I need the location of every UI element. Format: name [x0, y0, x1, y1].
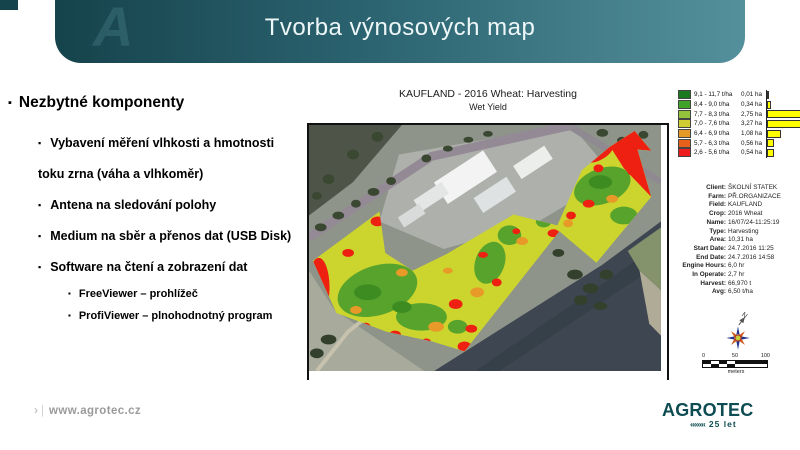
info-row: Harvest:66,970 t	[670, 280, 798, 289]
legend-bar-axis	[766, 129, 781, 139]
legend-row: 8,4 - 9,0 t/ha 0,34 ha	[678, 100, 800, 110]
legend-swatch	[678, 119, 691, 128]
scale-bar	[702, 360, 768, 368]
list-item: ▪Vybavení měření vlhkosti a hmotnosti to…	[30, 128, 320, 190]
yield-map	[307, 123, 669, 380]
legend-bar-axis	[766, 119, 800, 129]
info-row: Avg:6,50 t/ha	[670, 288, 798, 297]
legend-row: 7,0 - 7,6 t/ha 3,27 ha	[678, 119, 800, 129]
info-row: In Operate:2,7 hr	[670, 271, 798, 280]
corner-accent	[0, 0, 18, 10]
scale-ticks: 0 50 100	[702, 353, 770, 360]
info-row: Name:16/07/24-11:25:19	[670, 219, 798, 228]
bullet-icon: ▪	[38, 262, 41, 272]
list-item: ▪Software na čtení a zobrazení dat	[30, 252, 320, 283]
legend-bar-axis	[766, 109, 800, 119]
list-item: ▪FreeViewer – prohlížeč	[68, 283, 320, 305]
legend-row: 6,4 - 6,9 t/ha 1,08 ha	[678, 129, 800, 139]
map-subtitle: Wet Yield	[340, 102, 636, 112]
section-heading: ▪Nezbytné komponenty	[8, 94, 184, 112]
footer-url-block: ›|www.agrotec.cz	[34, 403, 141, 417]
sub-bullet-list: ▪FreeViewer – prohlížeč ▪ProfiViewer – p…	[30, 283, 320, 327]
compass-rose-icon: N	[719, 309, 757, 353]
slide: A Tvorba výnosových map ▪Nezbytné kompon…	[0, 0, 800, 450]
bullet-list: ▪Vybavení měření vlhkosti a hmotnosti to…	[30, 128, 320, 327]
legend-bar-axis	[766, 138, 774, 148]
title-bar: A Tvorba výnosových map	[55, 0, 745, 63]
legend-bar-axis	[766, 148, 774, 158]
info-row: Client:ŠKOLNÍ STATEK	[670, 184, 798, 193]
legend-row: 9,1 - 11,7 t/ha 0,01 ha	[678, 90, 800, 100]
info-row: Start Date:24.7.2016 11:25	[670, 245, 798, 254]
info-row: End Date:24.7.2016 14:58	[670, 254, 798, 263]
bullet-icon: ▪	[38, 200, 41, 210]
map-title-block: KAUFLAND - 2016 Wheat: Harvesting Wet Yi…	[340, 88, 636, 112]
area-bar	[767, 91, 769, 99]
legend-swatch	[678, 139, 691, 148]
legend-row: 5,7 - 6,3 t/ha 0,56 ha	[678, 138, 800, 148]
info-row: Crop:2016 Wheat	[670, 210, 798, 219]
area-bar	[767, 120, 800, 128]
bullet-icon: ▪	[8, 97, 12, 109]
list-item: ▪Medium na sběr a přenos dat (USB Disk)	[30, 221, 320, 252]
area-bar	[767, 149, 774, 157]
yield-legend: 9,1 - 11,7 t/ha 0,01 ha 8,4 - 9,0 t/ha 0…	[678, 90, 800, 158]
area-bar	[767, 139, 774, 147]
area-bar	[767, 101, 771, 109]
list-item: ▪ProfiViewer – plnohodnotný program	[68, 305, 320, 327]
website-link[interactable]: www.agrotec.cz	[49, 405, 141, 417]
info-row: Engine Hours:6,0 hr	[670, 262, 798, 271]
scale-unit: meters	[702, 369, 770, 375]
brand-anniversary: ««««25 let	[662, 419, 753, 429]
bullet-icon: ▪	[38, 138, 41, 148]
area-bar	[767, 130, 781, 138]
divider: |	[41, 405, 44, 417]
legend-row: 7,7 - 8,3 t/ha 2,75 ha	[678, 109, 800, 119]
brand-name: AGROTEC	[662, 401, 753, 419]
chevron-right-icon: ›	[34, 403, 38, 417]
bullet-icon: ▪	[68, 311, 71, 320]
legend-bar-axis	[766, 90, 769, 100]
map-scale-bar: 0 50 100 meters	[702, 353, 770, 375]
info-row: Farm:PŘ.ORGANIZACE	[670, 193, 798, 202]
agrotec-logo: AGROTEC ««««25 let	[662, 401, 753, 429]
bullet-icon: ▪	[38, 231, 41, 241]
legend-bar-axis	[766, 100, 771, 110]
list-item: ▪Antena na sledování polohy	[30, 190, 320, 221]
legend-swatch	[678, 148, 691, 157]
legend-row: 2,6 - 5,6 t/ha 0,54 ha	[678, 148, 800, 158]
bullet-icon: ▪	[68, 289, 71, 298]
info-row: Type:Harvesting	[670, 228, 798, 237]
map-title: KAUFLAND - 2016 Wheat: Harvesting	[340, 88, 636, 100]
legend-swatch	[678, 90, 691, 99]
area-bar	[767, 110, 800, 118]
info-row: Area:10,31 ha	[670, 236, 798, 245]
page-title: Tvorba výnosových map	[55, 14, 745, 42]
legend-swatch	[678, 110, 691, 119]
satellite-image	[309, 125, 661, 371]
chevrons-icon: ««««	[690, 419, 705, 429]
legend-swatch	[678, 129, 691, 138]
info-row: Field:KAUFLAND	[670, 201, 798, 210]
legend-swatch	[678, 100, 691, 109]
harvest-info-panel: Client:ŠKOLNÍ STATEK Farm:PŘ.ORGANIZACE …	[670, 184, 798, 297]
